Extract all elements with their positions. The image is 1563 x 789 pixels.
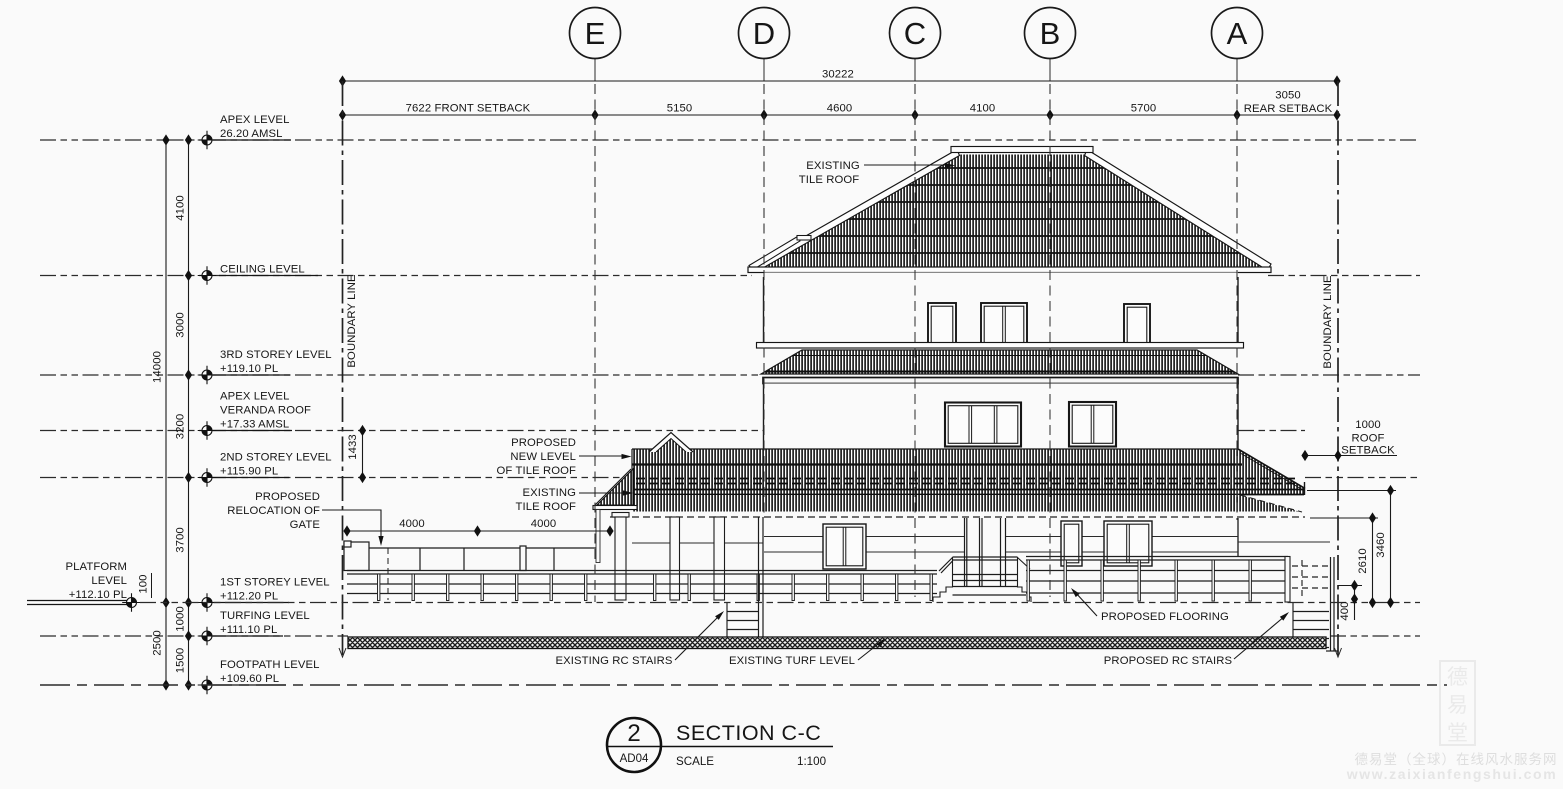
svg-text:APEX LEVEL: APEX LEVEL [220, 391, 289, 403]
svg-text:1000: 1000 [1355, 419, 1381, 431]
svg-text:www.zaixianfengshui.com: www.zaixianfengshui.com [1346, 766, 1558, 782]
svg-text:2500: 2500 [152, 630, 164, 656]
svg-text:4600: 4600 [827, 103, 853, 115]
svg-text:ROOF: ROOF [1351, 433, 1384, 445]
svg-text:400: 400 [1339, 601, 1351, 620]
svg-text:3050: 3050 [1275, 90, 1301, 102]
svg-text:SECTION C-C: SECTION C-C [676, 721, 821, 745]
svg-text:1:100: 1:100 [797, 755, 826, 768]
svg-text:14000: 14000 [152, 351, 164, 383]
svg-text:4000: 4000 [531, 518, 557, 530]
svg-text:TILE ROOF: TILE ROOF [799, 174, 860, 186]
svg-text:1000: 1000 [175, 606, 187, 632]
svg-text:4000: 4000 [399, 518, 425, 530]
svg-text:TURFING LEVEL: TURFING LEVEL [220, 610, 310, 622]
svg-text:LEVEL: LEVEL [91, 575, 127, 587]
svg-text:GATE: GATE [290, 519, 321, 531]
svg-text:REAR SETBACK: REAR SETBACK [1244, 103, 1333, 115]
svg-text:SETBACK: SETBACK [1341, 445, 1395, 457]
svg-text:3460: 3460 [1375, 532, 1387, 558]
svg-text:AD04: AD04 [620, 753, 649, 765]
svg-text:CEILING LEVEL: CEILING LEVEL [220, 264, 305, 276]
svg-text:BOUNDARY LINE: BOUNDARY LINE [1322, 275, 1334, 369]
svg-text:PROPOSED: PROPOSED [511, 437, 576, 449]
svg-text:3000: 3000 [175, 312, 187, 338]
svg-text:堂: 堂 [1447, 722, 1468, 745]
svg-text:B: B [1040, 16, 1061, 51]
svg-text:EXISTING RC STAIRS: EXISTING RC STAIRS [555, 655, 672, 667]
svg-text:VERANDA ROOF: VERANDA ROOF [220, 405, 311, 417]
svg-text:5150: 5150 [667, 103, 693, 115]
svg-text:1500: 1500 [175, 648, 187, 674]
svg-text:+119.10 PL: +119.10 PL [220, 363, 278, 375]
svg-text:德易堂（全球）在线风水服务网: 德易堂（全球）在线风水服务网 [1355, 751, 1558, 767]
svg-text:APEX LEVEL: APEX LEVEL [220, 114, 289, 126]
svg-text:易: 易 [1447, 694, 1468, 717]
svg-text:2ND STOREY LEVEL: 2ND STOREY LEVEL [220, 452, 332, 464]
svg-text:1433: 1433 [347, 434, 359, 460]
svg-text:OF TILE ROOF: OF TILE ROOF [497, 465, 576, 477]
svg-text:德: 德 [1447, 666, 1468, 689]
svg-text:A: A [1227, 16, 1248, 51]
svg-text:+17.33 AMSL: +17.33 AMSL [220, 419, 289, 431]
svg-text:EXISTING: EXISTING [806, 160, 860, 172]
svg-text:+112.10 PL: +112.10 PL [69, 589, 127, 601]
svg-text:+109.60 PL: +109.60 PL [220, 673, 279, 685]
svg-text:3RD STOREY LEVEL: 3RD STOREY LEVEL [220, 349, 332, 361]
svg-text:PROPOSED RC STAIRS: PROPOSED RC STAIRS [1104, 655, 1233, 667]
svg-text:1ST STOREY LEVEL: 1ST STOREY LEVEL [220, 577, 330, 589]
svg-text:+111.10 PL: +111.10 PL [220, 624, 277, 636]
svg-text:FOOTPATH LEVEL: FOOTPATH LEVEL [220, 659, 320, 671]
svg-text:E: E [585, 16, 606, 51]
svg-text:100: 100 [138, 574, 150, 593]
svg-text:2: 2 [627, 720, 640, 747]
svg-text:7622 FRONT SETBACK: 7622 FRONT SETBACK [406, 103, 531, 115]
svg-text:RELOCATION OF: RELOCATION OF [227, 505, 320, 517]
svg-text:2610: 2610 [1357, 548, 1369, 574]
svg-text:+115.90 PL: +115.90 PL [220, 466, 278, 478]
svg-text:EXISTING: EXISTING [522, 487, 576, 499]
svg-text:D: D [753, 16, 775, 51]
svg-text:30222: 30222 [822, 69, 854, 81]
svg-text:C: C [904, 16, 926, 51]
svg-text:SCALE: SCALE [676, 755, 714, 768]
svg-text:4100: 4100 [175, 195, 187, 221]
svg-text:26.20 AMSL: 26.20 AMSL [220, 128, 283, 140]
svg-text:+112.20 PL: +112.20 PL [220, 591, 278, 603]
svg-text:TILE ROOF: TILE ROOF [515, 501, 576, 513]
svg-text:PLATFORM: PLATFORM [66, 561, 127, 573]
svg-text:BOUNDARY LINE: BOUNDARY LINE [346, 274, 358, 368]
svg-text:PROPOSED: PROPOSED [255, 491, 320, 503]
svg-text:5700: 5700 [1131, 103, 1157, 115]
svg-text:4100: 4100 [970, 103, 996, 115]
svg-text:3200: 3200 [175, 414, 187, 440]
svg-text:EXISTING TURF LEVEL: EXISTING TURF LEVEL [729, 655, 855, 667]
svg-text:3700: 3700 [175, 527, 187, 553]
svg-text:NEW LEVEL: NEW LEVEL [510, 451, 576, 463]
svg-text:PROPOSED FLOORING: PROPOSED FLOORING [1101, 611, 1229, 623]
